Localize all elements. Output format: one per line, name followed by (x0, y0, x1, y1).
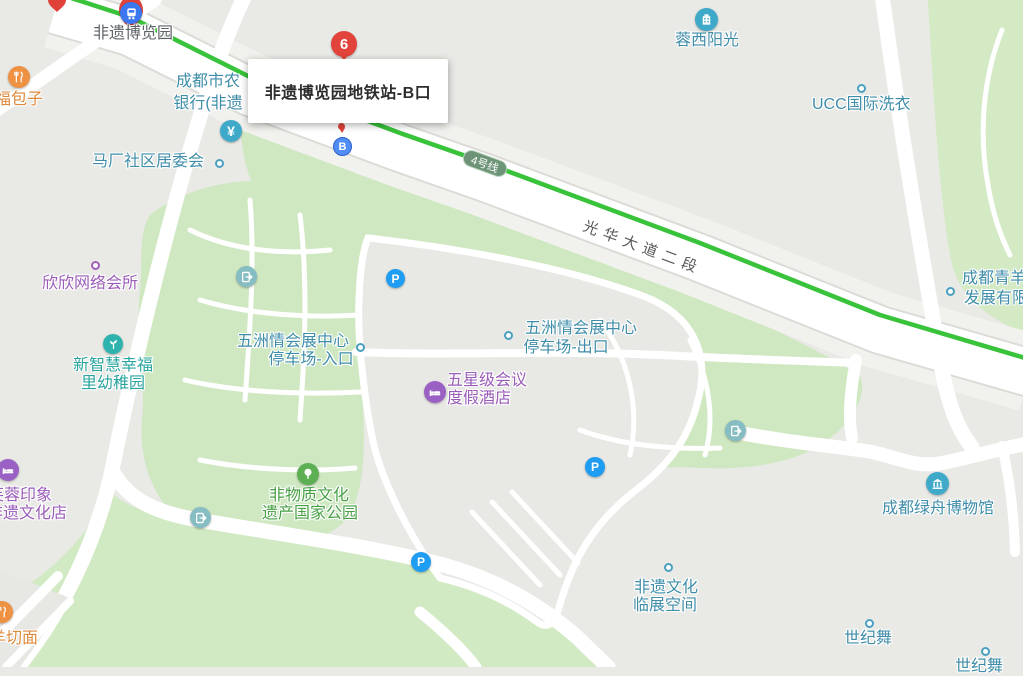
poi-label-qiemian[interactable]: 羊切面 (0, 630, 38, 648)
exit-b-marker[interactable]: B (333, 137, 352, 156)
parking-icon[interactable]: P (585, 457, 605, 477)
tree-icon[interactable] (297, 463, 319, 485)
hotel-bed-icon[interactable] (0, 459, 19, 481)
poi-label-station[interactable]: 非遗博览园 (93, 25, 173, 43)
map-screenshot: { "map": { "station_popup": { "title": "… (0, 0, 1023, 667)
plant-icon[interactable] (103, 334, 123, 354)
museum-icon[interactable] (926, 472, 949, 495)
poi-label-linzhan-line1[interactable]: 非遗文化 (634, 579, 698, 597)
poi-dot (664, 563, 673, 572)
poi-label-linzhan-line2[interactable]: 临展空间 (633, 597, 697, 615)
poi-label-shijiwu[interactable]: 世纪舞 (844, 630, 892, 648)
poi-dot (981, 647, 990, 656)
labels-layer: 非遗博览园 幸福包子 成都市农 银行(非遗 ¥ 马厂社区居委会 6 4号线 光华… (0, 0, 1023, 667)
bank-yuan-icon[interactable]: ¥ (220, 120, 242, 142)
poi-label-parking-entrance-line1[interactable]: 五洲情会展中心 (237, 333, 349, 351)
poi-dot (504, 331, 513, 340)
gate-icon[interactable] (190, 507, 211, 528)
poi-label-parking-exit-line2[interactable]: 停车场-出口 (523, 339, 608, 357)
poi-dot (946, 287, 955, 296)
station-popup[interactable]: 非遗博览园地铁站-B口 (248, 59, 448, 123)
poi-label-qingyang-line2[interactable]: 发展有限 (964, 290, 1023, 308)
poi-label-museum[interactable]: 成都绿舟博物馆 (882, 500, 994, 518)
poi-dot (857, 84, 866, 93)
restaurant-icon[interactable] (0, 601, 13, 623)
road-name-label: 光华大道二段 (580, 215, 705, 279)
parking-icon[interactable]: P (411, 552, 431, 572)
station-popup-title: 非遗博览园地铁站-B口 (265, 79, 431, 103)
exit-b-pin[interactable] (338, 123, 345, 130)
building-icon[interactable] (695, 8, 718, 31)
poi-label-kindergarten-line1[interactable]: 新智慧幸福 (73, 357, 153, 375)
gate-icon[interactable] (236, 266, 257, 287)
poi-label-furong-line2[interactable]: 非遗文化店 (0, 505, 67, 523)
marker-number: 6 (340, 36, 348, 53)
poi-label-kindergarten-line2[interactable]: 里幼稚园 (81, 375, 145, 393)
poi-label-furong-line1[interactable]: 芙蓉印象 (0, 487, 52, 505)
metro-train-icon[interactable] (120, 2, 142, 24)
poi-label-parking-exit-line1[interactable]: 五洲情会展中心 (525, 320, 637, 338)
poi-label-community[interactable]: 马厂社区居委会 (92, 153, 204, 171)
poi-label-hotel-line1[interactable]: 五星级会议 (447, 372, 527, 390)
parking-icon[interactable]: P (386, 269, 405, 288)
poi-label-hotel-line2[interactable]: 度假酒店 (447, 390, 511, 408)
poi-label-parking-entrance-line2[interactable]: 停车场-入口 (268, 351, 353, 369)
poi-label-bank-line2[interactable]: 银行(非遗 (173, 95, 242, 113)
poi-label-qingyang-line1[interactable]: 成都青羊 (962, 270, 1023, 288)
poi-dot (356, 343, 365, 352)
numbered-marker-6[interactable]: 6 (331, 31, 357, 57)
poi-label-heritage-park-line1[interactable]: 非物质文化 (269, 487, 349, 505)
poi-dot (865, 619, 874, 628)
poi-dot (91, 261, 100, 270)
poi-label-rongxi[interactable]: 蓉西阳光 (675, 32, 739, 50)
hotel-bed-icon[interactable] (424, 381, 446, 403)
poi-label-bank-line1[interactable]: 成都市农 (176, 73, 240, 91)
poi-label-xinxin[interactable]: 欣欣网络会所 (42, 275, 138, 293)
gate-icon[interactable] (725, 420, 746, 441)
poi-dot (215, 159, 224, 168)
metro-line-badge: 4号线 (460, 148, 509, 180)
poi-label-ucc[interactable]: UCC国际洗衣 (812, 96, 911, 114)
restaurant-icon[interactable] (8, 66, 30, 88)
poi-label-heritage-park-line2[interactable]: 遗产国家公园 (262, 505, 358, 523)
poi-label-baozi[interactable]: 幸福包子 (0, 91, 43, 109)
